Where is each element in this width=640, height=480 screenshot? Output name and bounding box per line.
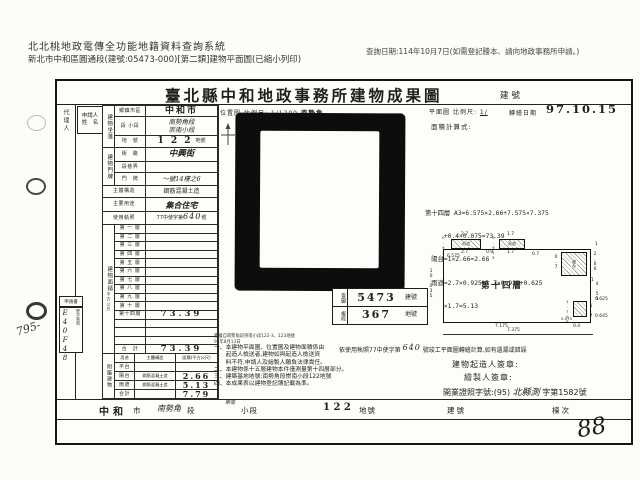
balcony-box: 陽台: [561, 252, 587, 276]
dim-right-low: 0.645: [595, 315, 608, 320]
floor-area-section-label: 建物面積 平方公尺: [103, 225, 115, 354]
annex-row-structure: [135, 390, 176, 399]
floor-label: [115, 337, 146, 346]
floor-label: 第 四 層: [115, 251, 146, 260]
redraw-date-value: 97.10.15: [546, 102, 618, 116]
calc-line: 第十四層 A3=6.575×2.66+7.575×7.375: [425, 210, 549, 218]
floor-label: [115, 320, 146, 329]
north-arrow-icon: [220, 123, 236, 147]
structure-value: 鋼筋混凝土造: [146, 186, 218, 198]
annex-row-structure: 鋼筋混凝土造: [135, 381, 176, 390]
dim-top: 1.7: [507, 233, 514, 238]
print-subtitle: 新北市中和區圓通段(建號:05473-000)[第二類]建物平面圖(已縮小列印): [28, 53, 301, 65]
stamp-row: 查圖 5473 建號: [333, 289, 427, 307]
field-label: 段 小段: [115, 117, 146, 136]
annex-row-area: [176, 363, 218, 372]
floor-value: [146, 259, 218, 268]
stamp-row-label: 複段: [333, 307, 348, 324]
dim-balcony-left: 0.7: [553, 255, 558, 270]
license-cert-handwritten: 北縣測: [513, 388, 540, 398]
structure-label: 主體構造: [103, 186, 146, 198]
agent-label: 代理人: [61, 109, 70, 133]
applicant-name-box: 申請人 姓 名: [77, 106, 103, 134]
lane-value: [146, 162, 218, 173]
field-label: 街 路: [115, 148, 146, 162]
license-cert-line: 開業證照字號:(95) 北縣測 字第1582號: [443, 385, 587, 398]
annex-header-structure: 主體構造: [135, 354, 176, 363]
floor-plan-drawing: 雨遮 雨遮 陽台 2.7 1.7 2.7 0.9 1.7 0.7 1 1 0.9…: [435, 237, 627, 341]
floor-plan-scale-label: 比例尺:: [453, 109, 477, 116]
dim-top: 2.7: [461, 233, 468, 238]
note-line: 料不符,申請人及繪製人願負法律責任。: [214, 360, 344, 367]
floor-value: [146, 337, 218, 346]
case-number-label: 謄字第號: [75, 309, 81, 351]
floor-label: 第 九 層: [115, 294, 146, 303]
usage-value: 集合住宅: [146, 198, 218, 212]
annex-section-label: 附屬建物: [103, 354, 115, 399]
annex-table: 附屬建物 用途 主體構造 面積(平方公尺) 平台 陽台 鋼筋混凝土造 2.66 …: [102, 353, 219, 400]
annex-total-value: 7.79: [176, 390, 218, 399]
license-prefix: 77中使字第: [157, 216, 183, 221]
building-number-label: 建號: [500, 89, 523, 101]
canopy-label: 雨遮: [462, 241, 470, 247]
dim-right-low: 1.7: [588, 304, 593, 319]
canopy-box: 雨遮: [451, 239, 481, 249]
license-number-handwritten: 640: [183, 213, 201, 221]
dim-canopy-height: 0.925: [441, 235, 445, 260]
lot-unit: 地號: [196, 139, 206, 144]
floor-14-area-value: 73.39: [146, 311, 218, 320]
license-suffix: 號: [201, 216, 206, 221]
city-value: 中和市: [146, 106, 218, 117]
dim-left-side: 10.035: [428, 269, 433, 299]
note-line: 四、本成果表以建物登記簿記載為準。: [214, 381, 344, 388]
strip-city: 中和: [99, 403, 127, 418]
floor-area-table: 建物面積 平方公尺 第 一 層 第 二 層 第 三 層 第 四 層 第 五 層 …: [102, 224, 219, 355]
floor-area-title: 建物面積: [106, 266, 112, 292]
license-cert-prefix: 開業證照字號:(95): [443, 388, 510, 397]
floor-label: 第 八 層: [115, 285, 146, 294]
floor-label: 第 二 層: [115, 234, 146, 243]
dim-total-line: [443, 334, 593, 335]
dim-top-inner: 2.7: [461, 251, 468, 256]
strip-subsection-unit: 小段: [241, 405, 258, 416]
balcony-area-value: 2.66: [176, 372, 218, 381]
strip-subsection: 崇南: [225, 401, 235, 406]
seal-ring-icon: [26, 178, 46, 195]
floor-label: 第 三 層: [115, 242, 146, 251]
annex-row-use: 平台: [115, 363, 135, 372]
dim-top-inner: 0.7: [532, 253, 539, 258]
canopy-box: 雨遮: [499, 239, 525, 249]
floor-label: [115, 328, 146, 337]
annex-header-use: 用途: [115, 354, 135, 363]
area-calc-label: 面積計算式:: [431, 121, 472, 131]
floor-plan-scale: 1/: [480, 109, 488, 116]
door-plate-value: ～號14樓之6: [146, 173, 218, 186]
dim-left-top: 6.575: [447, 255, 460, 260]
annex-total-label: 合計: [115, 390, 135, 399]
application-box: 申請書: [59, 296, 83, 307]
floor-value: [146, 328, 218, 337]
field-label: 地 號: [115, 136, 146, 148]
location-map-inner: [260, 131, 380, 269]
lot-number-value: 1 2 2 地號: [146, 136, 218, 148]
stamp-row-label: 查圖: [333, 289, 348, 306]
floor-label: 第 一 層: [115, 225, 146, 234]
usage-label: 主要用途: [103, 198, 146, 212]
query-date: 查詢日期:114年10月7日(如需登記謄本、請向地政事務所申請。): [366, 46, 579, 57]
floor-area-unit: 平方公尺: [107, 292, 111, 312]
floor-value: [146, 268, 218, 277]
strip-building-no-label: 建號: [447, 405, 466, 416]
floor-value: [146, 277, 218, 286]
scanned-building-survey-page: 北北桃地政電傳全功能地籍資料查詢系統 新北市中和區圓通段(建號:05473-00…: [0, 0, 640, 480]
lot-number: 1 2 2: [157, 137, 192, 146]
notes-block: 謄繪自南勢角段崇南小段122-3、123地號 97年8月13日 一、本建物平面圖…: [214, 333, 344, 389]
floor-value: [146, 285, 218, 294]
building-number-value: 5473: [348, 289, 405, 306]
builder-signature-label: 建物起造人簽章:: [452, 359, 519, 370]
strip-unit-label: 棟次: [552, 405, 571, 416]
location-section-label: 建物坐落: [103, 106, 115, 148]
floor-value: [146, 320, 218, 329]
canopy-label: 雨遮: [508, 241, 516, 247]
strip-lot-unit: 地號: [359, 405, 376, 416]
floor-label: 第 六 層: [115, 268, 146, 277]
balcony-label: 陽台: [571, 260, 577, 268]
document-frame: 臺北縣中和地政事務所建物成果圖 建號 代理人 申請人 姓 名 建物坐落 鄉鎮市區…: [55, 79, 633, 445]
margin-rule: [75, 104, 76, 399]
floor-value: [146, 302, 218, 311]
floor-label: 第 五 層: [115, 259, 146, 268]
handwritten-scribble: 795-: [15, 318, 43, 338]
dim-one: 1: [595, 243, 598, 248]
annex-header-area: 面積(平方公尺): [176, 354, 218, 363]
floor-value: [146, 251, 218, 260]
stamp-unit: 地號: [405, 307, 427, 324]
field-label: 門 牌: [115, 173, 146, 186]
floor-value: [146, 294, 218, 303]
seal-ring-icon: [26, 302, 47, 320]
address-section-label: 建物門牌: [103, 148, 115, 186]
section-value: 南勢角段 崇南小段: [146, 117, 218, 136]
license-cert-suffix: 字第1582號: [542, 388, 586, 397]
floor-label: 第 七 層: [115, 277, 146, 286]
dim-bottom-total: 7.375: [505, 329, 522, 334]
dim-right-balcony: 2.66: [592, 252, 597, 272]
field-label: 段巷弄: [115, 162, 146, 173]
system-title: 北北桃地政電傳全功能地籍資料查詢系統: [28, 38, 226, 53]
doc-title: 臺北縣中和地政事務所建物成果圖: [165, 84, 443, 106]
drafter-signature-label: 繪製人簽章:: [464, 372, 513, 383]
lot-number-stamp-value: 367: [348, 307, 405, 324]
check-stamp-table: 查圖 5473 建號 複段 367 地號: [332, 288, 428, 325]
stamp-unit: 建號: [405, 289, 427, 306]
cert-prefix: 依使用執照77中使字第: [339, 347, 401, 354]
building-info-table: 建物坐落 鄉鎮市區 中和市 段 小段 南勢角段 崇南小段 地 號 1 2 2 地…: [102, 105, 219, 226]
floor-label: 第十四層: [115, 311, 146, 320]
floor-label: 第 十 層: [115, 302, 146, 311]
cert-line: 依使用執照77中使字第 640 號竣工平面圖轉繪計算,如有遺漏或錯誤: [339, 345, 527, 354]
strip-bottom-rule: [57, 419, 631, 420]
handwritten-page-number: 88: [575, 413, 608, 444]
annex-row-use: 陽台: [115, 372, 135, 381]
annex-row-structure: [135, 363, 176, 372]
floor-value: [146, 225, 218, 234]
annex-row-structure: 鋼筋混凝土造: [135, 372, 176, 381]
cert-license-number: 640: [403, 343, 421, 352]
strip-city-unit: 市: [133, 405, 141, 416]
dim-right-low: 0.625: [595, 298, 608, 303]
dim-top-inner: 1.7: [507, 251, 514, 256]
floor-plan-header: 平面圖 比例尺: 1/: [429, 107, 488, 116]
strip-section: 南勢角: [157, 403, 181, 414]
annex-row-use: 雨遮: [115, 381, 135, 390]
floor-value: [146, 234, 218, 243]
note-line: 起造人檢送者,建物如與起造人檢送資: [214, 352, 344, 359]
room-label: 第十四層: [481, 279, 523, 291]
floor-plan-label: 平面圖: [429, 109, 450, 116]
dim-notch: 0.075: [561, 317, 572, 321]
dim-canopy-height: 0.925: [491, 235, 495, 260]
strip-lot: 1 2 2: [323, 402, 351, 413]
field-label: 鄉鎮市區: [115, 106, 146, 117]
binder-hole-icon: [27, 115, 46, 131]
street-value: 中興街: [146, 148, 218, 162]
dim-bottom: 0.4: [573, 325, 580, 330]
plan-notch-box: [573, 301, 587, 317]
stamp-row: 複段 367 地號: [333, 307, 427, 324]
cert-suffix: 號竣工平面圖轉繪計算,如有遺漏或錯誤: [423, 347, 527, 354]
case-number-box: E40F48 謄字第號: [59, 307, 83, 353]
strip-section-unit: 段: [187, 405, 195, 416]
canopy-area-value: 5.13: [176, 381, 218, 390]
location-map-blob: [235, 113, 406, 292]
case-number-handwritten: E40F48: [61, 309, 69, 351]
redraw-date-label: 轉繪日期: [509, 108, 537, 117]
floor-value: [146, 242, 218, 251]
